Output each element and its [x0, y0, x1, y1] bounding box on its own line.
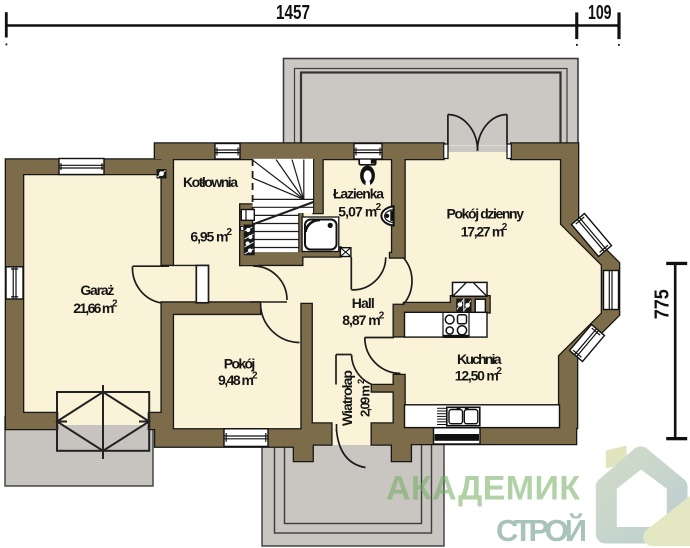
svg-text:2: 2 — [376, 202, 382, 213]
svg-text:8,87 m: 8,87 m — [342, 312, 381, 328]
svg-text:2: 2 — [502, 222, 508, 233]
svg-text:5,07 m: 5,07 m — [338, 204, 377, 220]
svg-text:775: 775 — [651, 289, 674, 319]
svg-text:6,95 m: 6,95 m — [190, 228, 228, 244]
svg-text:СТРОЙ: СТРОЙ — [496, 512, 587, 548]
svg-text:9,48 m: 9,48 m — [218, 372, 254, 388]
svg-text:17,27 m: 17,27 m — [461, 223, 505, 239]
svg-text:2: 2 — [252, 371, 258, 382]
svg-text:12,50 m: 12,50 m — [455, 368, 499, 384]
svg-text:Pokój dzienny: Pokój dzienny — [447, 206, 525, 222]
svg-text:1457: 1457 — [276, 1, 310, 24]
svg-text:Garaż: Garaż — [80, 282, 114, 298]
svg-text:2: 2 — [227, 227, 233, 238]
svg-text:21,66 m: 21,66 m — [73, 300, 114, 316]
svg-text:Hall: Hall — [352, 295, 375, 311]
svg-text:Kotłownia: Kotłownia — [183, 174, 238, 190]
svg-text:109: 109 — [588, 1, 612, 24]
svg-text:2: 2 — [379, 311, 385, 322]
svg-text:2,09 m: 2,09 m — [358, 385, 373, 417]
svg-text:Pokój: Pokój — [224, 356, 256, 372]
svg-text:АКАДЕМИК: АКАДЕМИК — [386, 470, 580, 508]
svg-text:Wiatrołap: Wiatrołap — [339, 370, 355, 426]
svg-text:Kuchnia: Kuchnia — [457, 351, 502, 367]
svg-text:2: 2 — [356, 379, 367, 384]
svg-text:2: 2 — [112, 299, 118, 310]
svg-text:2: 2 — [496, 366, 502, 377]
svg-text:Łazienka: Łazienka — [333, 185, 384, 201]
